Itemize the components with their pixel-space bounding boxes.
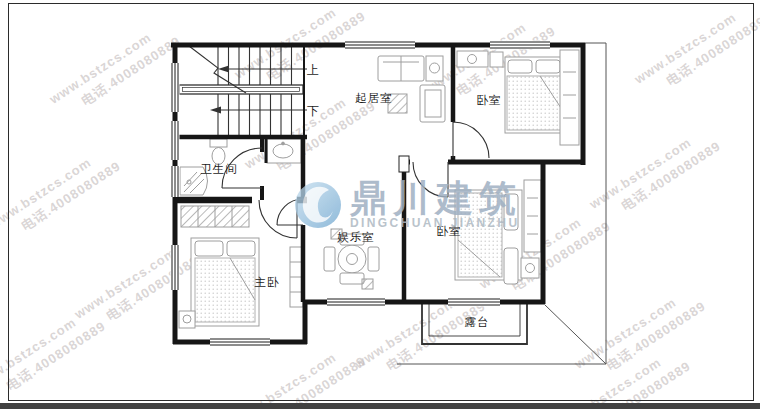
living-room-sofa-set <box>378 56 445 122</box>
room-label-bedroom-bottom-right: 卧室 <box>437 225 462 237</box>
bedroom-top-right-furniture <box>457 50 579 145</box>
staircase <box>179 46 307 135</box>
room-label-living: 起居室 <box>355 92 393 104</box>
stairs-down-label: 下 <box>307 104 319 118</box>
room-label-recreation: 娱乐室 <box>337 231 375 243</box>
room-label-terrace: 露台 <box>465 316 490 328</box>
floor-plan-page: www.bstzcs.com电话.4008080889www.bstzcs.co… <box>0 0 760 409</box>
bottom-edge-bar <box>0 403 760 409</box>
floor-plan-drawing: 起居室 卧室 卫生间 主卧 娱乐室 卧室 露台 上 下 <box>0 0 760 409</box>
room-label-bedroom-top-right: 卧室 <box>477 94 502 106</box>
bathroom-fixtures <box>180 139 301 195</box>
master-bedroom-furniture <box>179 206 303 328</box>
room-label-bathroom: 卫生间 <box>200 163 238 175</box>
door-jamb <box>399 156 409 172</box>
stairs-up-label: 上 <box>307 63 319 77</box>
room-label-master-bedroom: 主卧 <box>255 276 280 288</box>
bedroom-bottom-right-furniture <box>455 180 541 284</box>
